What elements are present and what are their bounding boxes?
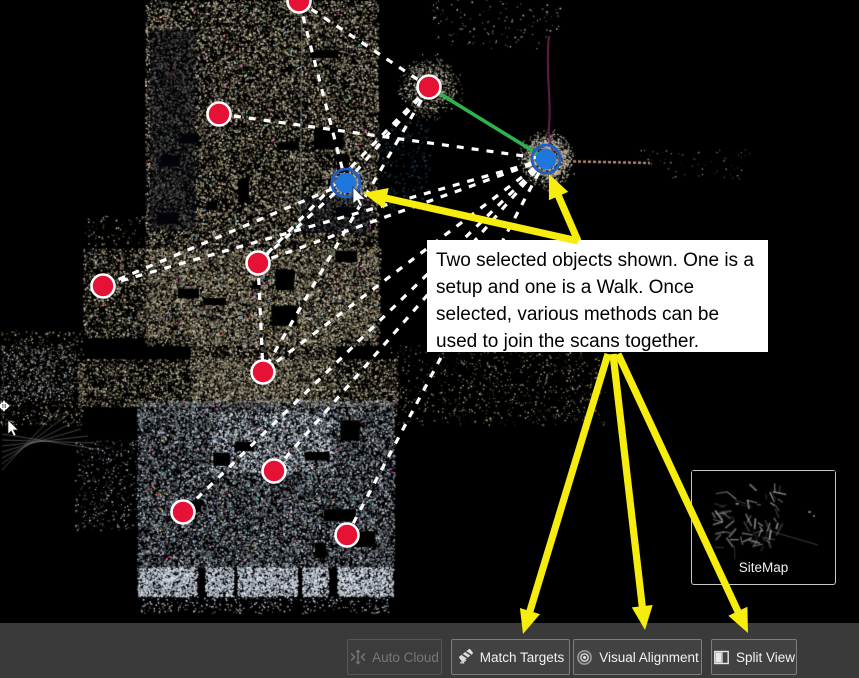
sitemap-label: SiteMap xyxy=(692,560,835,575)
visual-alignment-icon xyxy=(576,649,593,666)
callout-text: selected, various methods can be xyxy=(436,301,768,328)
callout-text: setup and one is a Walk. Once xyxy=(436,274,768,301)
match-targets-button[interactable]: Match Targets xyxy=(451,639,570,675)
bottom-toolbar: Auto Cloud Match Targets Visual Alignmen… xyxy=(0,623,859,678)
sitemap-thumbnail xyxy=(692,471,835,566)
visual-alignment-button[interactable]: Visual Alignment xyxy=(573,639,702,675)
callout-text: used to join the scans together. xyxy=(436,328,768,355)
split-view-icon xyxy=(713,649,730,666)
auto-cloud-icon xyxy=(350,649,366,665)
scan-registration-viewport: Two selected objects shown. One is a set… xyxy=(0,0,859,678)
callout-text: Two selected objects shown. One is a xyxy=(436,247,768,274)
callout-box: Two selected objects shown. One is a set… xyxy=(427,240,768,352)
sitemap-panel[interactable]: SiteMap xyxy=(691,470,836,585)
match-targets-icon xyxy=(457,649,474,666)
split-view-button[interactable]: Split View xyxy=(711,639,797,675)
auto-cloud-button: Auto Cloud xyxy=(347,639,442,675)
